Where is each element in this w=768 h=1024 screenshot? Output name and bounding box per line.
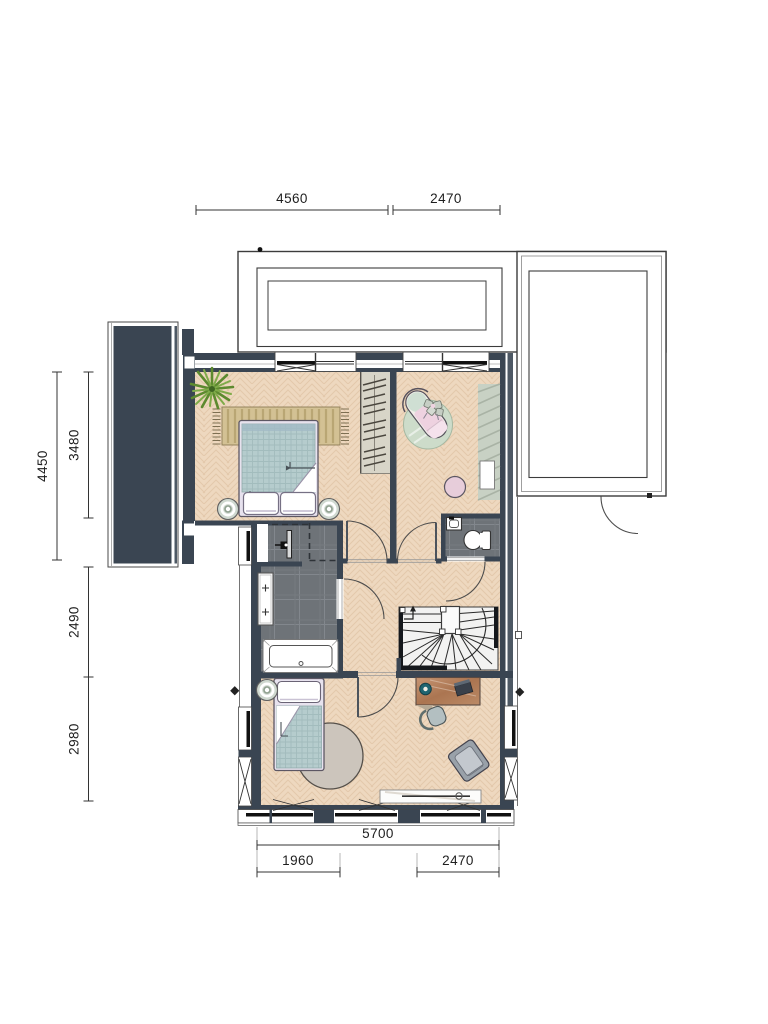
svg-text:4560: 4560 <box>276 191 308 206</box>
svg-text:2980: 2980 <box>67 723 82 755</box>
svg-text:2490: 2490 <box>67 606 82 638</box>
svg-text:5700: 5700 <box>362 826 394 841</box>
svg-text:2470: 2470 <box>442 853 474 868</box>
svg-text:1960: 1960 <box>282 853 314 868</box>
svg-text:2470: 2470 <box>430 191 462 206</box>
svg-text:3480: 3480 <box>67 429 82 461</box>
svg-text:4450: 4450 <box>35 450 50 482</box>
